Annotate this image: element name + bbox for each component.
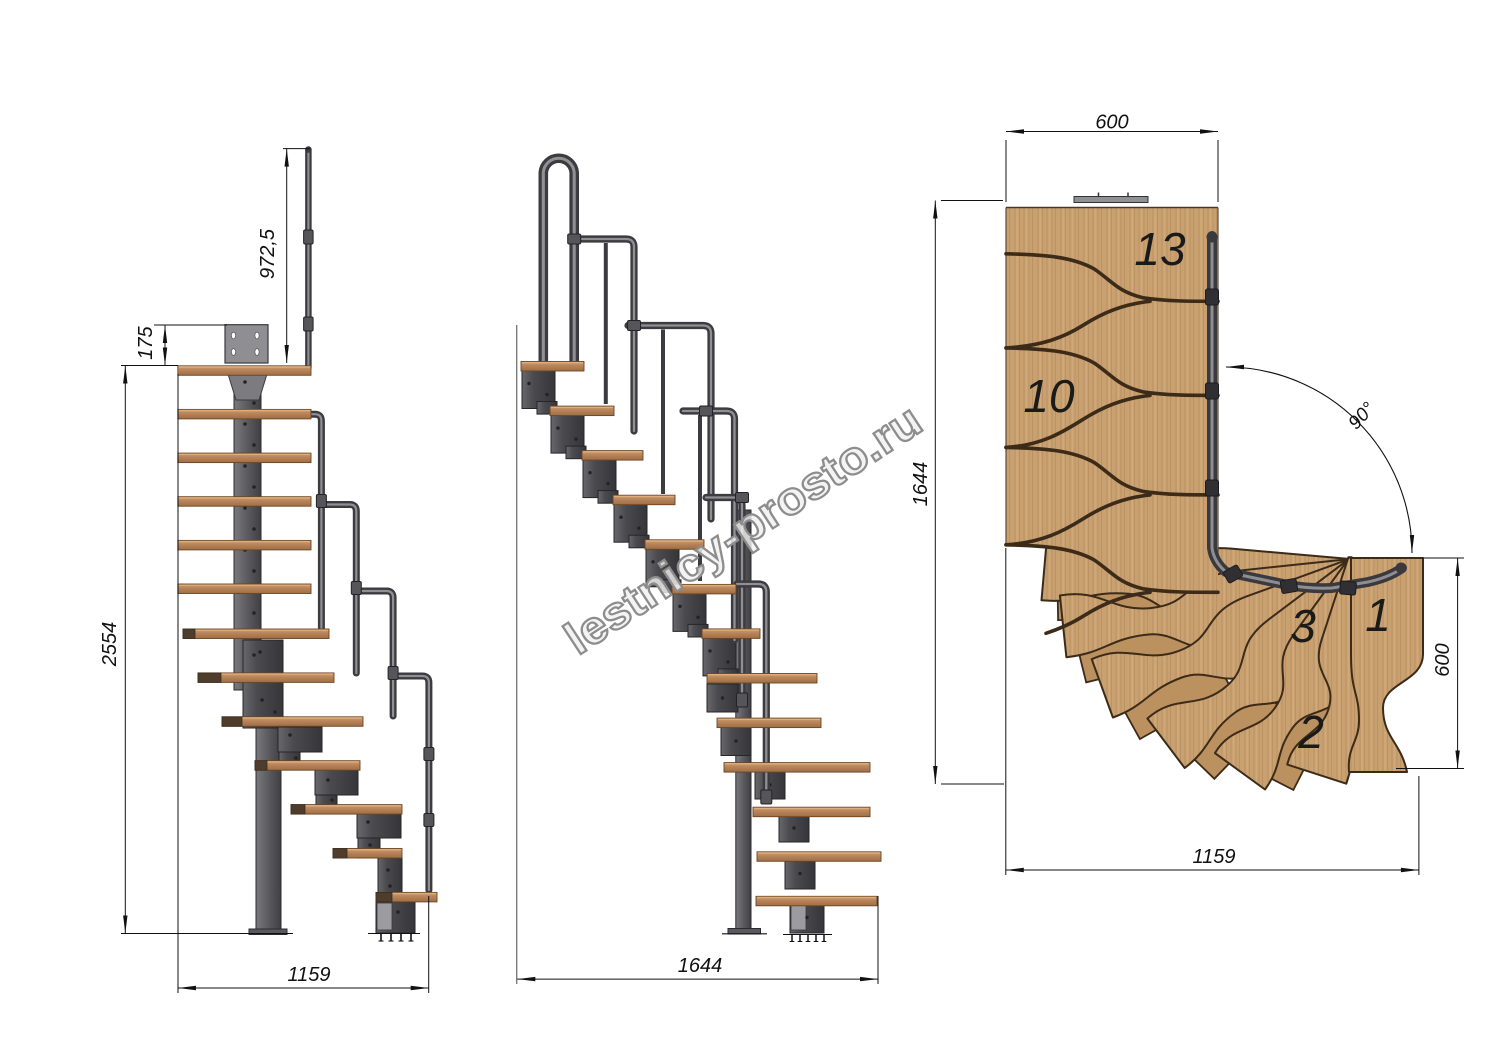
- svg-text:1159: 1159: [1192, 846, 1235, 868]
- svg-text:3: 3: [1290, 600, 1316, 652]
- svg-text:600: 600: [1432, 643, 1454, 676]
- svg-text:1644: 1644: [678, 955, 723, 977]
- svg-text:1: 1: [1365, 589, 1391, 641]
- svg-text:972,5: 972,5: [257, 228, 279, 279]
- svg-text:175: 175: [135, 325, 157, 359]
- svg-text:1644: 1644: [910, 462, 932, 507]
- svg-text:600: 600: [1095, 112, 1128, 134]
- svg-text:2554: 2554: [99, 622, 121, 668]
- svg-text:13: 13: [1134, 223, 1186, 275]
- svg-text:2: 2: [1297, 706, 1324, 758]
- svg-text:1159: 1159: [287, 964, 330, 986]
- svg-text:10: 10: [1023, 370, 1075, 422]
